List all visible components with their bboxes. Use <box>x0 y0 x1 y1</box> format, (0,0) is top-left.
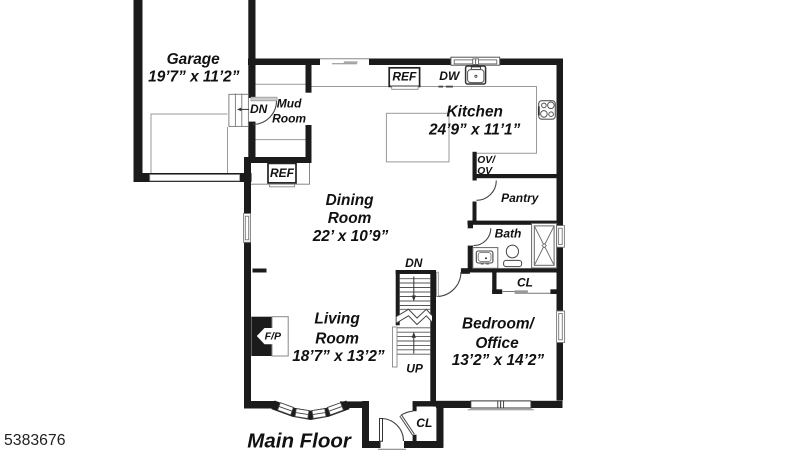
svg-text:Room: Room <box>315 331 359 348</box>
svg-text:Main Floor: Main Floor <box>247 430 352 450</box>
svg-text:Bedroom/: Bedroom/ <box>462 316 536 333</box>
svg-text:REF: REF <box>270 166 295 180</box>
svg-text:Bath: Bath <box>495 227 522 241</box>
svg-text:UP: UP <box>406 361 424 375</box>
svg-text:Room: Room <box>272 111 306 125</box>
svg-text:CL: CL <box>517 276 533 290</box>
svg-text:REF: REF <box>392 69 417 83</box>
svg-text:OV: OV <box>477 166 493 177</box>
svg-text:DN: DN <box>405 256 423 270</box>
svg-text:13’2” x 14’2”: 13’2” x 14’2” <box>452 352 545 369</box>
svg-text:Pantry: Pantry <box>501 191 540 205</box>
svg-text:Office: Office <box>475 335 519 352</box>
svg-text:OV/: OV/ <box>477 155 496 166</box>
svg-text:24’9” x 11’1”: 24’9” x 11’1” <box>428 121 521 138</box>
svg-text:Garage: Garage <box>167 51 220 68</box>
svg-text:Living: Living <box>314 311 360 328</box>
svg-text:Mud: Mud <box>277 97 302 111</box>
svg-text:F/P: F/P <box>265 331 282 343</box>
svg-text:CL: CL <box>416 416 432 430</box>
svg-text:Room: Room <box>328 210 372 227</box>
svg-text:DN: DN <box>250 102 268 116</box>
svg-text:18’7” x 13’2”: 18’7” x 13’2” <box>292 348 385 365</box>
svg-text:5383676: 5383676 <box>4 432 66 449</box>
svg-text:Dining: Dining <box>326 192 374 209</box>
svg-text:22’ x 10’9”: 22’ x 10’9” <box>312 228 389 245</box>
svg-text:DW: DW <box>439 69 461 83</box>
svg-text:Kitchen: Kitchen <box>446 104 502 121</box>
svg-text:19’7” x 11’2”: 19’7” x 11’2” <box>148 68 240 85</box>
